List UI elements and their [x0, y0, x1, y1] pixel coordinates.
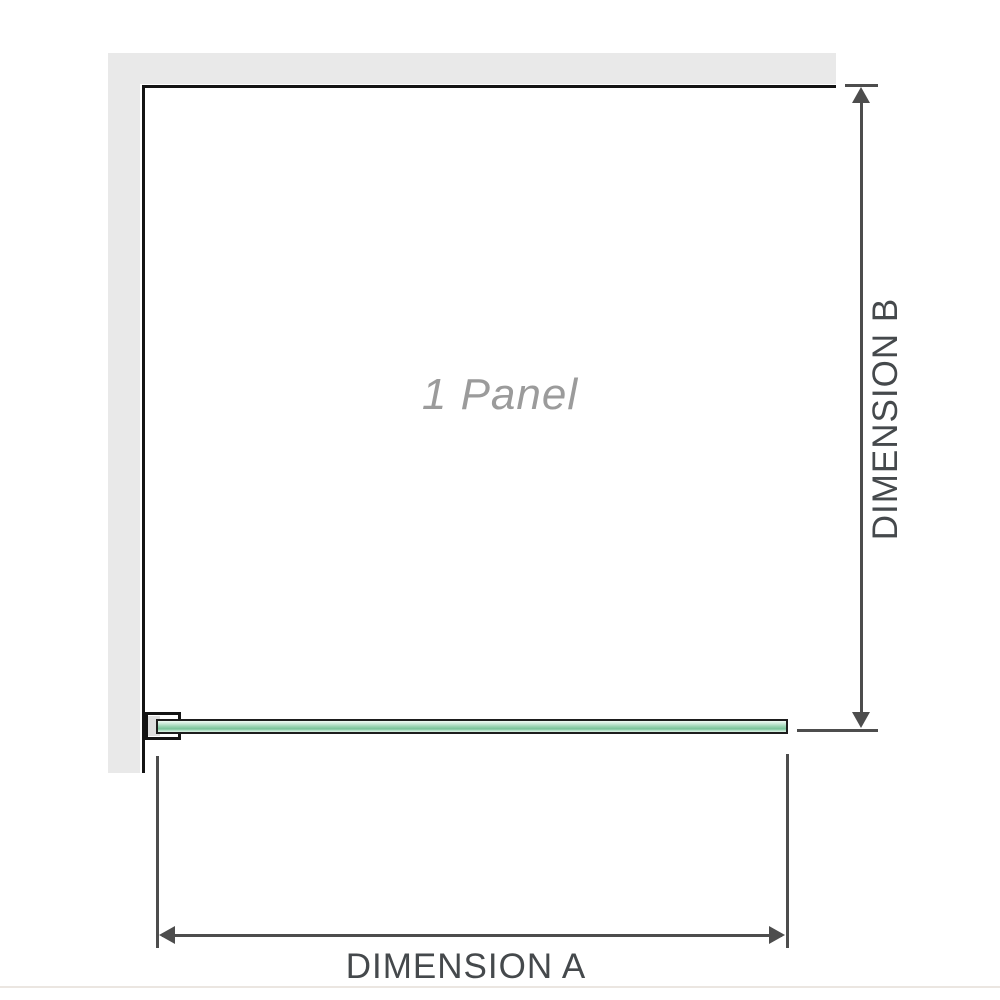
wall-band-horizontal	[108, 53, 836, 84]
panel-count-label: 1 Panel	[350, 370, 650, 420]
panel-outline-left-edge	[142, 85, 145, 773]
dimension-b-label: DIMENSION B	[867, 269, 905, 569]
dimension-a-line	[162, 934, 782, 937]
bottom-divider-line	[0, 986, 1000, 988]
dimension-b-arrow-down-icon	[852, 712, 870, 728]
dimension-a-arrow-right-icon	[769, 926, 785, 944]
dimension-a-label: DIMENSION A	[316, 947, 616, 987]
wall-band-vertical	[108, 53, 140, 773]
shower-panel-dimension-diagram: 1 Panel DIMENSION B DIMENSION A	[0, 0, 1000, 1000]
dimension-b-bottom-tick	[797, 729, 878, 732]
glass-panel-bar	[156, 719, 788, 734]
dimension-a-arrow-left-icon	[159, 926, 175, 944]
dimension-b-line	[860, 92, 863, 724]
panel-outline-top-edge	[142, 85, 836, 88]
dimension-a-right-extension-line	[786, 754, 789, 948]
dimension-b-arrow-up-icon	[852, 87, 870, 103]
dimension-a-left-extension-line	[156, 756, 159, 948]
